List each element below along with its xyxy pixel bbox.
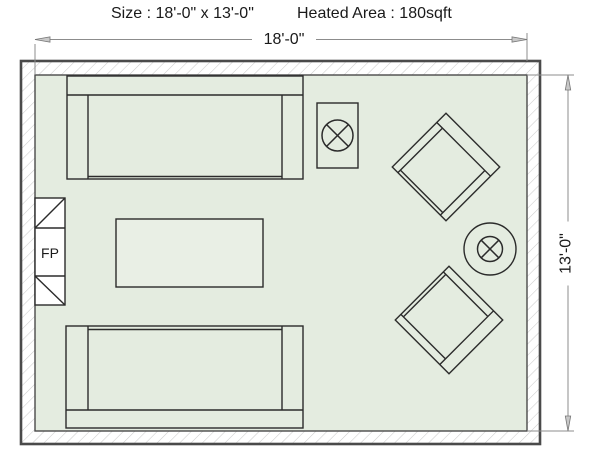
side-table-with-table-lamp bbox=[317, 103, 358, 168]
arrow-right-icon bbox=[512, 37, 527, 42]
heated-area-label: Heated Area : 180sqft bbox=[297, 5, 452, 23]
sofa-top bbox=[67, 76, 303, 179]
arrow-left-icon bbox=[35, 37, 50, 42]
round-side-table-with-floor-lamp bbox=[464, 223, 516, 275]
width-dimension-label: 18'-0" bbox=[252, 31, 316, 48]
size-label: Size : 18'-0" x 13'-0" bbox=[111, 5, 254, 23]
floor-plan-page: Size : 18'-0" x 13'-0" Heated Area : 180… bbox=[0, 0, 600, 450]
arrow-up-icon bbox=[565, 75, 570, 90]
fireplace-label: FP bbox=[35, 245, 65, 261]
coffee-table bbox=[116, 219, 263, 287]
floor-plan-drawing bbox=[0, 0, 600, 450]
arrow-down-icon bbox=[565, 416, 570, 431]
height-dimension-label: 13'-0" bbox=[558, 222, 575, 286]
sofa-bottom bbox=[66, 326, 303, 428]
